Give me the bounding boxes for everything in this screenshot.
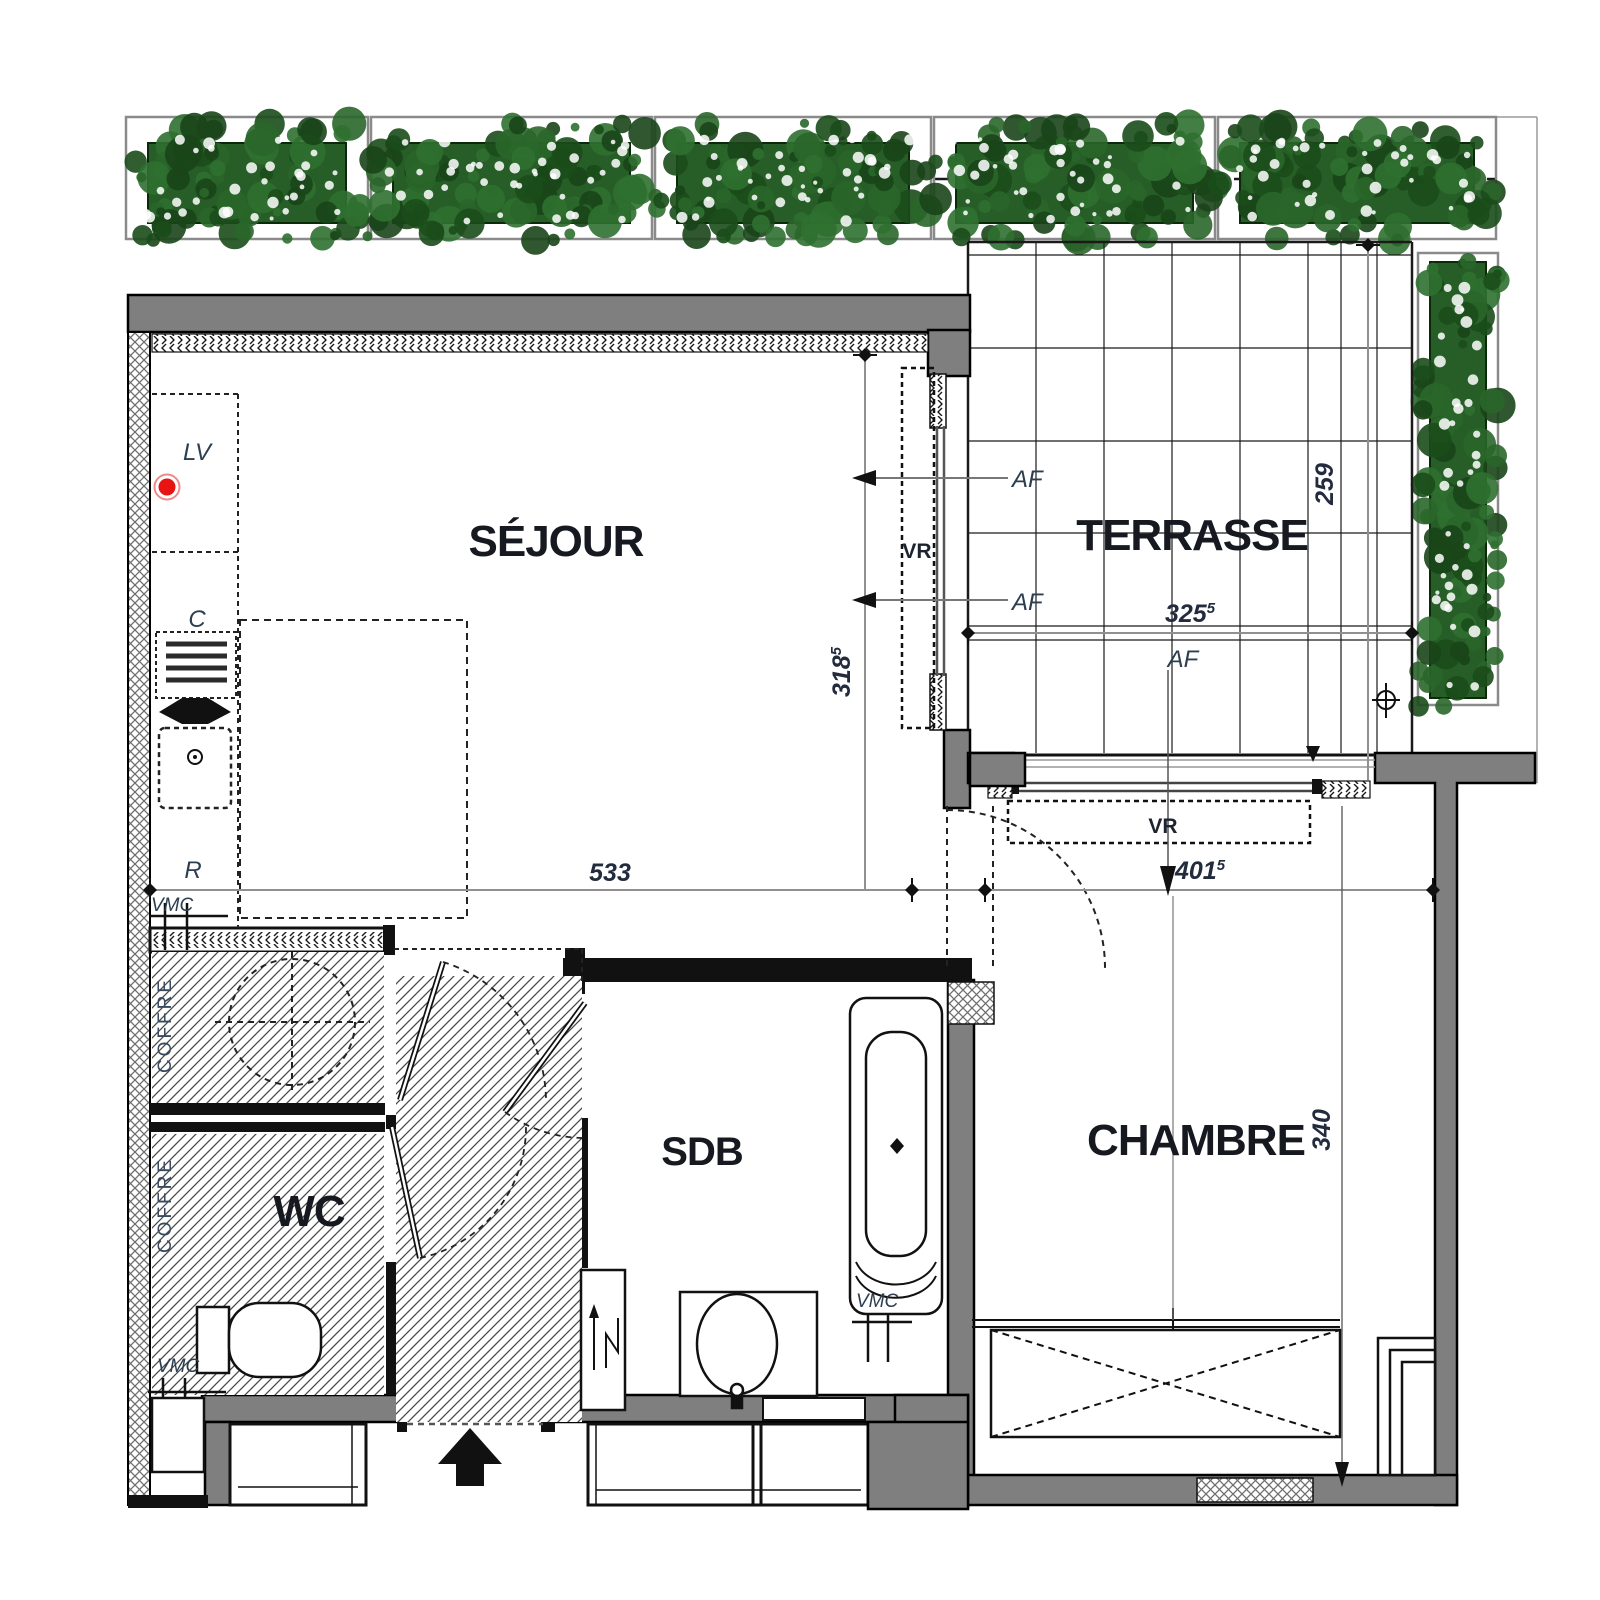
wall-top	[128, 295, 970, 332]
floor-plan-svg: SÉJOUR TERRASSE CHAMBRE WC SDB LV C R VM…	[0, 0, 1600, 1600]
annotation-r: R	[184, 857, 201, 884]
dim-chambre-width: 4015	[1174, 857, 1226, 885]
vmc-duct-icon-sdb	[852, 1308, 912, 1362]
annotation-coffre-2: COFFRE	[155, 1157, 176, 1253]
floor-plan-page: SÉJOUR TERRASSE CHAMBRE WC SDB LV C R VM…	[0, 0, 1600, 1600]
annotation-lv: LV	[183, 439, 213, 466]
wall-left-insulated	[128, 332, 150, 1505]
annotation-vmc-wc: VMC	[157, 1356, 200, 1377]
worktop-icon	[159, 698, 231, 724]
window-reveal-icon	[1378, 1338, 1435, 1475]
room-label-sdb: SDB	[661, 1130, 743, 1174]
wall-post	[383, 925, 395, 955]
red-dot-marker	[159, 479, 176, 496]
dim-chambre-depth: 340	[1308, 1109, 1336, 1151]
planter-foliage-icon	[125, 107, 1516, 717]
closet-icon	[972, 1308, 1340, 1437]
toilet-icon	[197, 1303, 321, 1377]
annotation-vmc-sejour: VMC	[151, 895, 194, 916]
wall-top-insulation	[152, 334, 928, 352]
leader-arrow-down	[1160, 866, 1176, 896]
cooktop-icon	[156, 632, 236, 698]
annotation-af-1: AF	[1010, 466, 1044, 493]
room-label-sejour: SÉJOUR	[469, 516, 644, 566]
duct-lattice-chambre	[1197, 1478, 1313, 1502]
wall-wc-bottom	[202, 1395, 405, 1422]
washbasin-icon	[680, 1292, 817, 1408]
annotation-vr-sejour: VR	[902, 540, 931, 563]
entry-arrow-icon	[438, 1428, 502, 1486]
dim-terrasse-depth: 259	[1311, 463, 1339, 506]
wall-top-pillar	[928, 330, 970, 376]
furniture-zone-dashed	[240, 620, 467, 918]
annotation-af-3: AF	[1166, 646, 1200, 673]
room-label-wc: WC	[273, 1187, 345, 1236]
electrical-panel-icon	[581, 1270, 625, 1410]
duct-lattice-hall	[948, 982, 994, 1024]
annotation-vmc-sdb: VMC	[856, 1291, 899, 1312]
annotation-af-2: AF	[1010, 589, 1044, 616]
room-label-terrasse: TERRASSE	[1076, 511, 1308, 560]
dim-sejour-depth: 3185	[828, 646, 856, 697]
terrace-drain-icon	[1372, 683, 1400, 718]
wall-sdb-top	[563, 958, 972, 982]
air-inlet-leaders	[852, 470, 1008, 608]
wall-coffre-wc-a	[150, 1103, 385, 1115]
dim-sejour-width: 533	[589, 859, 631, 887]
door-chambre	[947, 806, 1105, 968]
kitchen-sink-icon	[159, 728, 231, 808]
wall-coffre-wc-b	[150, 1122, 385, 1132]
room-label-chambre: CHAMBRE	[1087, 1116, 1305, 1165]
wall-bay-post	[205, 1422, 230, 1505]
dim-terrasse-width: 3255	[1165, 600, 1216, 628]
bathtub-icon	[850, 998, 942, 1314]
annotation-coffre-1: COFFRE	[155, 977, 176, 1073]
annotation-c: C	[188, 606, 206, 633]
wall-wc-lower	[386, 1262, 396, 1395]
wall-left-cap	[128, 1495, 208, 1508]
wall-mid-pillar	[944, 730, 970, 808]
terrace-decking	[968, 242, 1412, 753]
annotation-vr-chambre: VR	[1148, 815, 1177, 838]
